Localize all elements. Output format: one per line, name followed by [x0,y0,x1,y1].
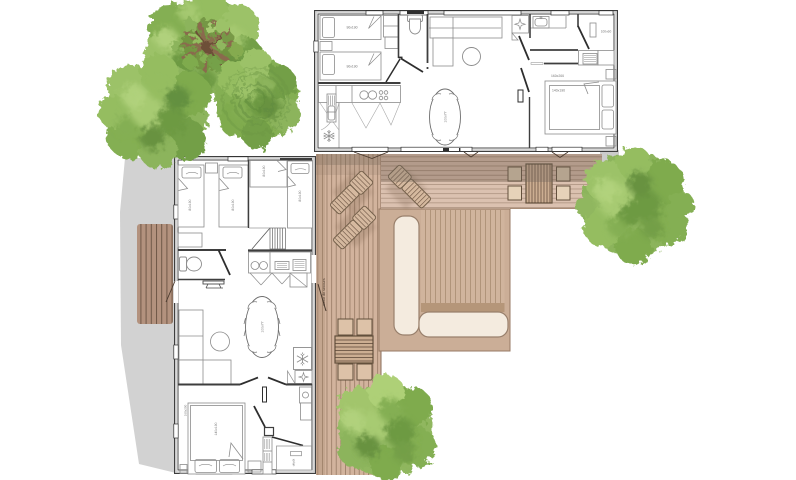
svg-text:90x190: 90x190 [346,65,357,69]
svg-text:160x200: 160x200 [184,404,188,416]
svg-text:dépôt: dépôt [292,459,296,467]
svg-text:140x190: 140x190 [214,422,218,435]
svg-text:100x77: 100x77 [444,111,448,122]
svg-text:100x60: 100x60 [601,30,612,34]
svg-text:140x190: 140x190 [552,89,565,93]
svg-text:80x190: 80x190 [188,199,192,210]
svg-text:80x190: 80x190 [298,190,302,201]
svg-text:sortie de secours: sortie de secours [322,278,326,306]
svg-text:90x190: 90x190 [346,26,357,30]
svg-text:100x77: 100x77 [261,321,265,332]
svg-text:80x190: 80x190 [231,199,235,210]
svg-text:160x200: 160x200 [551,74,564,78]
svg-text:80x190: 80x190 [262,165,266,176]
